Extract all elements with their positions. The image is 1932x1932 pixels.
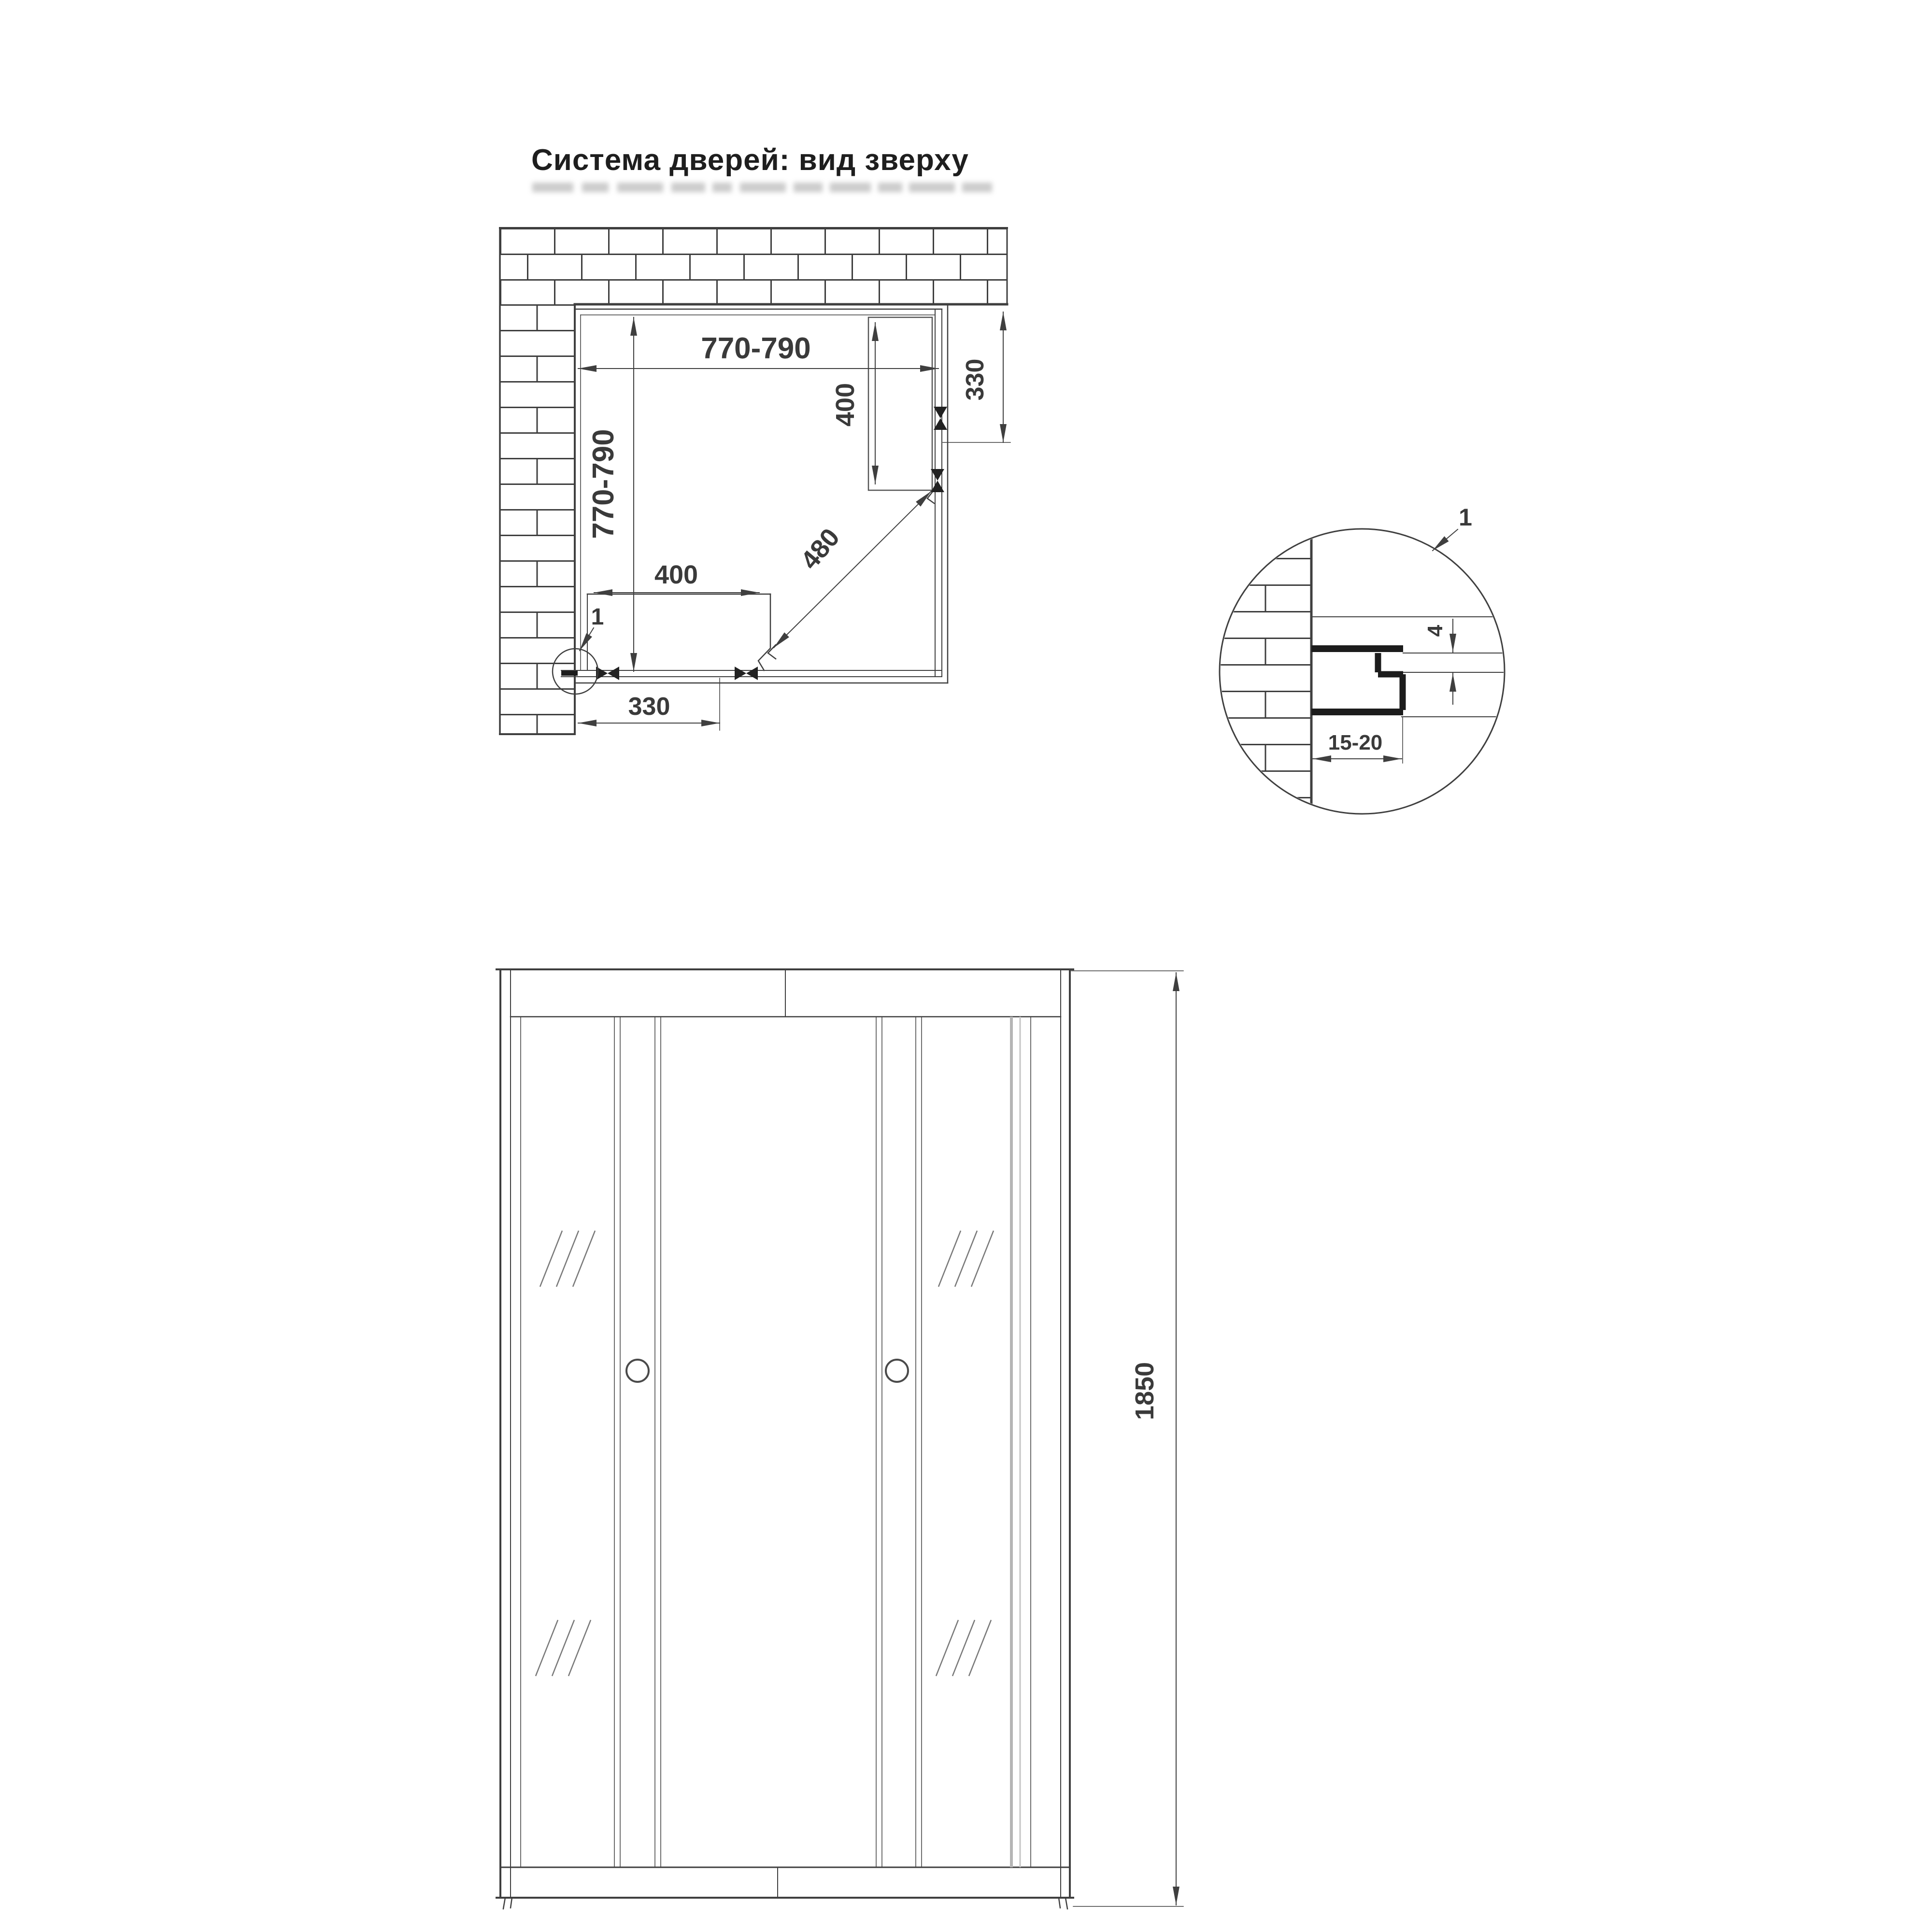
plan-view: 770-790 770-790 400 330 480 400 330 1: [500, 228, 1010, 734]
plan-side-panel-right: [868, 317, 932, 490]
plan-dimensions: 770-790 770-790 400 330 480 400 330: [578, 312, 1010, 730]
detail-callout-leader: 1: [1433, 504, 1472, 551]
plan-sliding-door-diagonal: [768, 488, 936, 659]
page-title: Система дверей: вид зверху: [531, 143, 969, 177]
right-door-handle: [886, 1360, 908, 1382]
detail-callout-label: 1: [1459, 504, 1472, 531]
dim-height-label: 1850: [1130, 1362, 1159, 1420]
dim-glass-thickness-label: 4: [1423, 625, 1447, 637]
front-glass-hatch-marks: [536, 1231, 994, 1676]
dim-wall-clearance-label: 15-20: [1328, 731, 1383, 754]
detail-dimensions: 4 15-20: [1313, 619, 1453, 763]
dim-depth-left-label: 770-790: [587, 429, 620, 539]
front-dimensions: 1850: [1071, 971, 1183, 1906]
front-frame: [497, 969, 1073, 1909]
front-panel-edges: [521, 1017, 1031, 1867]
dim-bottom-panel-label: 400: [654, 560, 698, 589]
dim-side-panel-label: 400: [831, 383, 860, 426]
dim-side-opening-label: 330: [961, 359, 989, 401]
detail-brick-wall: [1207, 524, 1311, 824]
left-door-handle: [626, 1360, 649, 1382]
plan-side-panel-bottom: [587, 594, 770, 670]
front-view: 1850: [497, 969, 1183, 1909]
dim-door-diagonal-label: 480: [795, 523, 845, 575]
dim-line-door-diagonal: [774, 491, 931, 648]
detail-view: 4 15-20 1: [1207, 504, 1507, 824]
dim-width-top-label: 770-790: [701, 332, 811, 365]
drawing-canvas: Система дверей: вид зверху: [0, 0, 1932, 1932]
technical-drawing: Система дверей: вид зверху: [0, 0, 1932, 1932]
front-door-handles: [626, 1360, 908, 1382]
faded-subtitle-artifact: [532, 183, 992, 192]
detail-glass-lines: [1311, 617, 1507, 717]
dim-bottom-opening-label: 330: [628, 693, 670, 721]
detail-wall-profile: [1311, 649, 1403, 712]
plan-callout-label: 1: [591, 604, 604, 630]
